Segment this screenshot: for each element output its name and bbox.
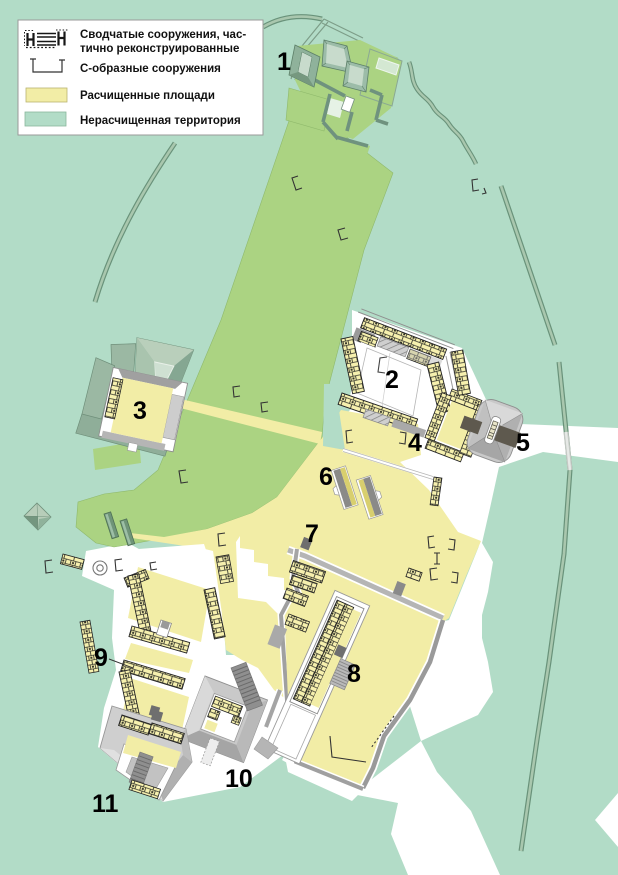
svg-text:11: 11 <box>92 790 119 818</box>
svg-text:7: 7 <box>305 520 319 548</box>
svg-text:6: 6 <box>319 463 333 491</box>
svg-text:С-образные сооружения: С-образные сооружения <box>80 63 221 75</box>
svg-text:5: 5 <box>516 429 530 457</box>
svg-text:Нерасчищенная территория: Нерасчищенная территория <box>80 115 241 127</box>
svg-text:9: 9 <box>94 644 108 672</box>
svg-text:10: 10 <box>225 765 253 793</box>
svg-text:тично реконструированные: тично реконструированные <box>80 43 239 55</box>
svg-text:2: 2 <box>385 366 399 394</box>
svg-text:8: 8 <box>347 660 361 688</box>
svg-text:Сводчатые сооружения, час-: Сводчатые сооружения, час- <box>80 29 246 41</box>
svg-text:4: 4 <box>408 429 422 457</box>
svg-text:3: 3 <box>133 397 147 425</box>
svg-text:Расчищенные площади: Расчищенные площади <box>80 90 215 102</box>
svg-text:1: 1 <box>277 48 291 76</box>
